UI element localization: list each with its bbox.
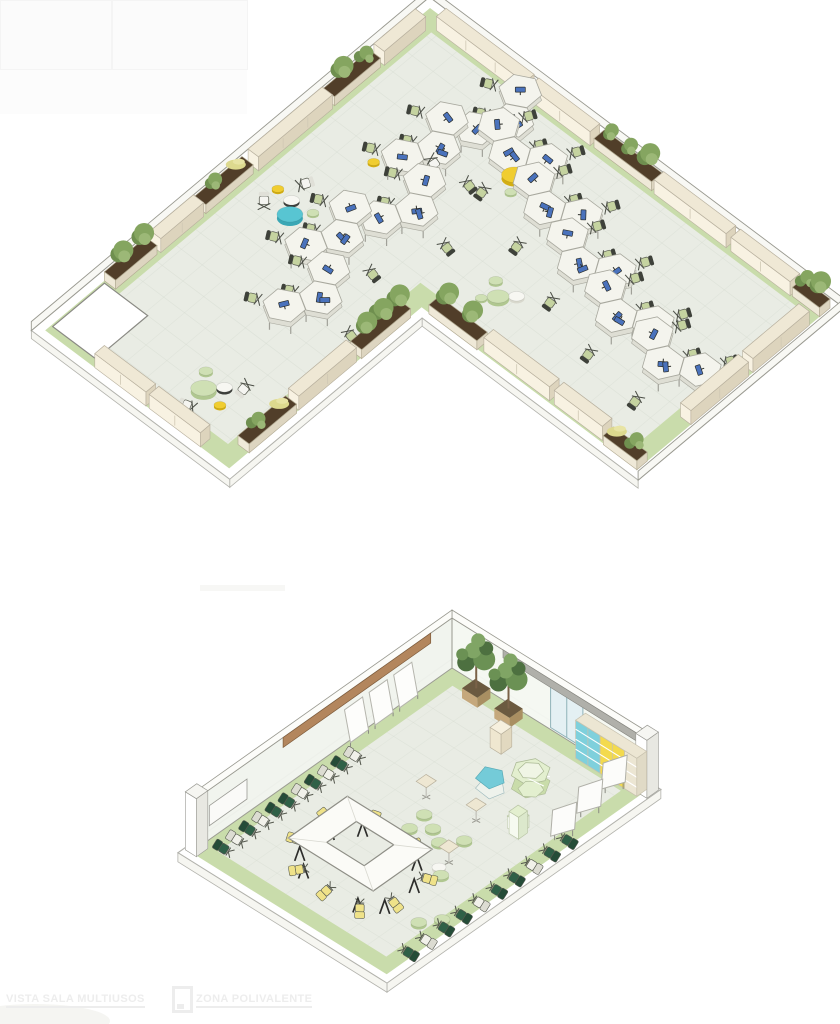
scene-sala-multiusos [178, 610, 661, 992]
page-canvas: VISTA SALA MULTIUSOS ZONA POLIVALENTE [0, 0, 840, 1024]
floorplan-renders [0, 0, 840, 1024]
thumbnail-frame-icon [172, 986, 193, 1013]
caption-zona-polivalente: ZONA POLIVALENTE [196, 993, 312, 1008]
thumbnail-frame-inner [177, 1004, 184, 1009]
caption-vista-sala-multiusos: VISTA SALA MULTIUSOS [6, 993, 145, 1008]
scene-open-office [31, 0, 840, 633]
